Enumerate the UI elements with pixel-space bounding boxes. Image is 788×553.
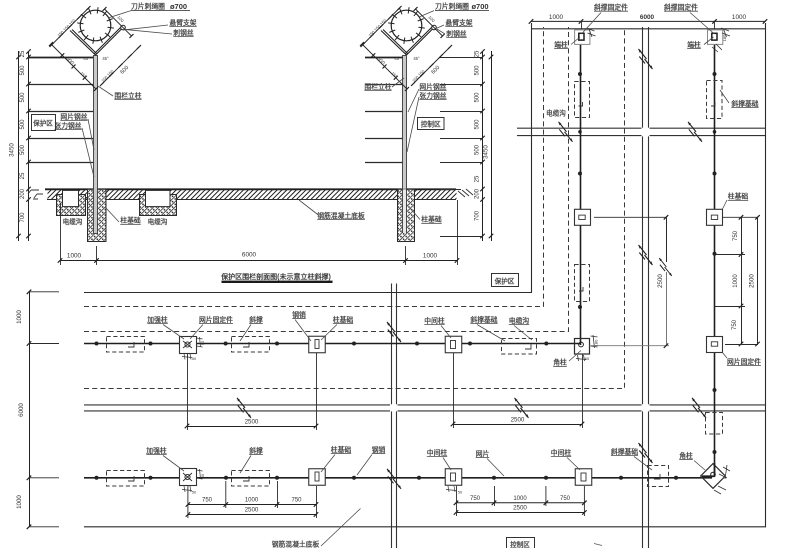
svg-text:柱基础: 柱基础 (333, 315, 354, 324)
svg-text:网片: 网片 (476, 449, 490, 458)
svg-text:网片钢丝: 网片钢丝 (419, 82, 446, 91)
svg-text:斜撑固定件: 斜撑固定件 (593, 2, 628, 11)
svg-text:2500: 2500 (513, 505, 527, 512)
svg-text:750: 750 (733, 230, 739, 241)
svg-text:1000: 1000 (67, 253, 82, 260)
svg-text:60: 60 (585, 356, 590, 361)
svg-text:斜撑基础: 斜撑基础 (610, 447, 638, 456)
svg-text:网片固定件: 网片固定件 (727, 357, 761, 366)
svg-text:柱基础: 柱基础 (120, 215, 141, 224)
svg-text:2500: 2500 (749, 274, 756, 288)
svg-text:500: 500 (20, 119, 26, 130)
svg-text:钢筋混凝土底板: 钢筋混凝土底板 (316, 211, 365, 220)
svg-text:50: 50 (458, 491, 462, 495)
svg-text:保护区: 保护区 (32, 119, 53, 128)
svg-text:柱基础: 柱基础 (331, 445, 352, 454)
svg-text:25: 25 (20, 50, 26, 57)
svg-text:加强柱: 加强柱 (146, 315, 168, 324)
svg-text:500: 500 (475, 92, 481, 103)
svg-text:中间柱: 中间柱 (427, 448, 448, 457)
svg-text:柱基础: 柱基础 (421, 214, 442, 223)
svg-text:750: 750 (560, 496, 571, 502)
svg-text:1000: 1000 (245, 498, 259, 504)
svg-text:50: 50 (201, 341, 205, 345)
svg-text:网片固定件: 网片固定件 (199, 315, 233, 324)
svg-text:电缆沟: 电缆沟 (63, 217, 83, 226)
svg-text:钢筋混凝土底板: 钢筋混凝土底板 (271, 539, 320, 548)
svg-text:25: 25 (475, 175, 481, 182)
svg-text:ø700: ø700 (170, 2, 187, 11)
svg-text:钢销: 钢销 (371, 445, 386, 454)
svg-text:加强柱: 加强柱 (145, 446, 167, 455)
svg-text:750: 750 (470, 496, 481, 502)
svg-text:200: 200 (20, 188, 26, 199)
svg-text:500: 500 (475, 65, 481, 76)
svg-text:2500: 2500 (245, 419, 259, 426)
svg-text:中间柱: 中间柱 (551, 448, 572, 457)
svg-text:1000: 1000 (16, 495, 23, 509)
svg-text:电缆沟: 电缆沟 (546, 109, 566, 118)
svg-text:45°: 45° (83, 56, 90, 61)
svg-text:中间柱: 中间柱 (424, 316, 445, 325)
svg-text:45°: 45° (413, 56, 420, 61)
svg-text:750: 750 (291, 498, 302, 504)
svg-text:保护区围栏剖面图(未示意立柱斜撑): 保护区围栏剖面图(未示意立柱斜撑) (220, 272, 331, 281)
svg-text:电缆沟: 电缆沟 (148, 217, 168, 226)
svg-text:悬臂支架: 悬臂支架 (444, 18, 472, 27)
svg-text:围栏立柱: 围栏立柱 (364, 82, 391, 91)
svg-text:1000: 1000 (732, 14, 747, 21)
svg-text:斜撑基础: 斜撑基础 (730, 99, 758, 108)
svg-text:刺钢丝: 刺钢丝 (445, 29, 467, 38)
svg-text:控制区: 控制区 (421, 120, 441, 129)
svg-text:端柱: 端柱 (687, 40, 701, 49)
svg-text:张力钢丝: 张力钢丝 (54, 121, 81, 130)
svg-text:端柱: 端柱 (554, 40, 568, 49)
svg-text:500: 500 (20, 65, 26, 76)
svg-text:张力钢丝: 张力钢丝 (419, 91, 446, 100)
svg-text:6000: 6000 (640, 14, 655, 21)
svg-text:保护区: 保护区 (494, 276, 515, 285)
svg-text:6000: 6000 (18, 403, 25, 417)
svg-text:2500: 2500 (657, 274, 664, 288)
svg-text:3450: 3450 (483, 145, 490, 159)
svg-text:750: 750 (732, 319, 738, 330)
svg-text:钢销: 钢销 (291, 310, 306, 319)
svg-text:1000: 1000 (423, 253, 438, 260)
svg-text:控制区: 控制区 (510, 540, 530, 548)
svg-text:1000: 1000 (549, 14, 564, 21)
svg-text:1000: 1000 (16, 310, 23, 324)
svg-text:角柱: 角柱 (553, 357, 567, 366)
svg-text:500: 500 (475, 144, 481, 155)
svg-text:700: 700 (20, 212, 26, 223)
svg-text:500: 500 (20, 92, 26, 103)
svg-text:50: 50 (201, 474, 205, 478)
svg-text:ø700: ø700 (471, 2, 488, 11)
svg-text:25: 25 (20, 172, 26, 179)
svg-text:角柱: 角柱 (679, 451, 693, 460)
svg-text:200: 200 (475, 188, 481, 199)
svg-text:500: 500 (475, 119, 481, 130)
svg-text:2500: 2500 (511, 417, 525, 424)
svg-text:500: 500 (20, 144, 26, 155)
svg-text:45°: 45° (102, 56, 109, 61)
svg-text:斜撑: 斜撑 (248, 446, 263, 455)
svg-text:悬臂支架: 悬臂支架 (168, 18, 196, 27)
svg-text:斜撑: 斜撑 (248, 315, 263, 324)
svg-text:180: 180 (722, 34, 727, 41)
svg-text:750: 750 (202, 498, 213, 504)
svg-text:刀片刺绳圈: 刀片刺绳圈 (435, 2, 469, 11)
svg-text:50: 50 (192, 491, 196, 495)
svg-text:网片钢丝: 网片钢丝 (60, 112, 87, 121)
svg-text:斜撑基础: 斜撑基础 (469, 315, 497, 324)
svg-text:50: 50 (192, 357, 196, 361)
svg-text:700: 700 (475, 210, 481, 221)
svg-text:1000: 1000 (733, 274, 739, 288)
svg-text:电缆沟: 电缆沟 (509, 316, 530, 325)
svg-text:斜撑固定件: 斜撑固定件 (663, 2, 698, 11)
svg-text:1000: 1000 (513, 496, 527, 502)
svg-text:刺钢丝: 刺钢丝 (172, 28, 194, 37)
svg-text:围栏立柱: 围栏立柱 (114, 91, 141, 100)
svg-text:6000: 6000 (242, 252, 257, 259)
svg-text:3450: 3450 (9, 143, 16, 157)
svg-text:25: 25 (475, 50, 481, 57)
svg-text:柱基础: 柱基础 (728, 191, 749, 200)
svg-text:2500: 2500 (245, 507, 259, 514)
svg-text:180: 180 (594, 339, 599, 346)
svg-text:刀片刺绳圈: 刀片刺绳圈 (131, 2, 165, 11)
